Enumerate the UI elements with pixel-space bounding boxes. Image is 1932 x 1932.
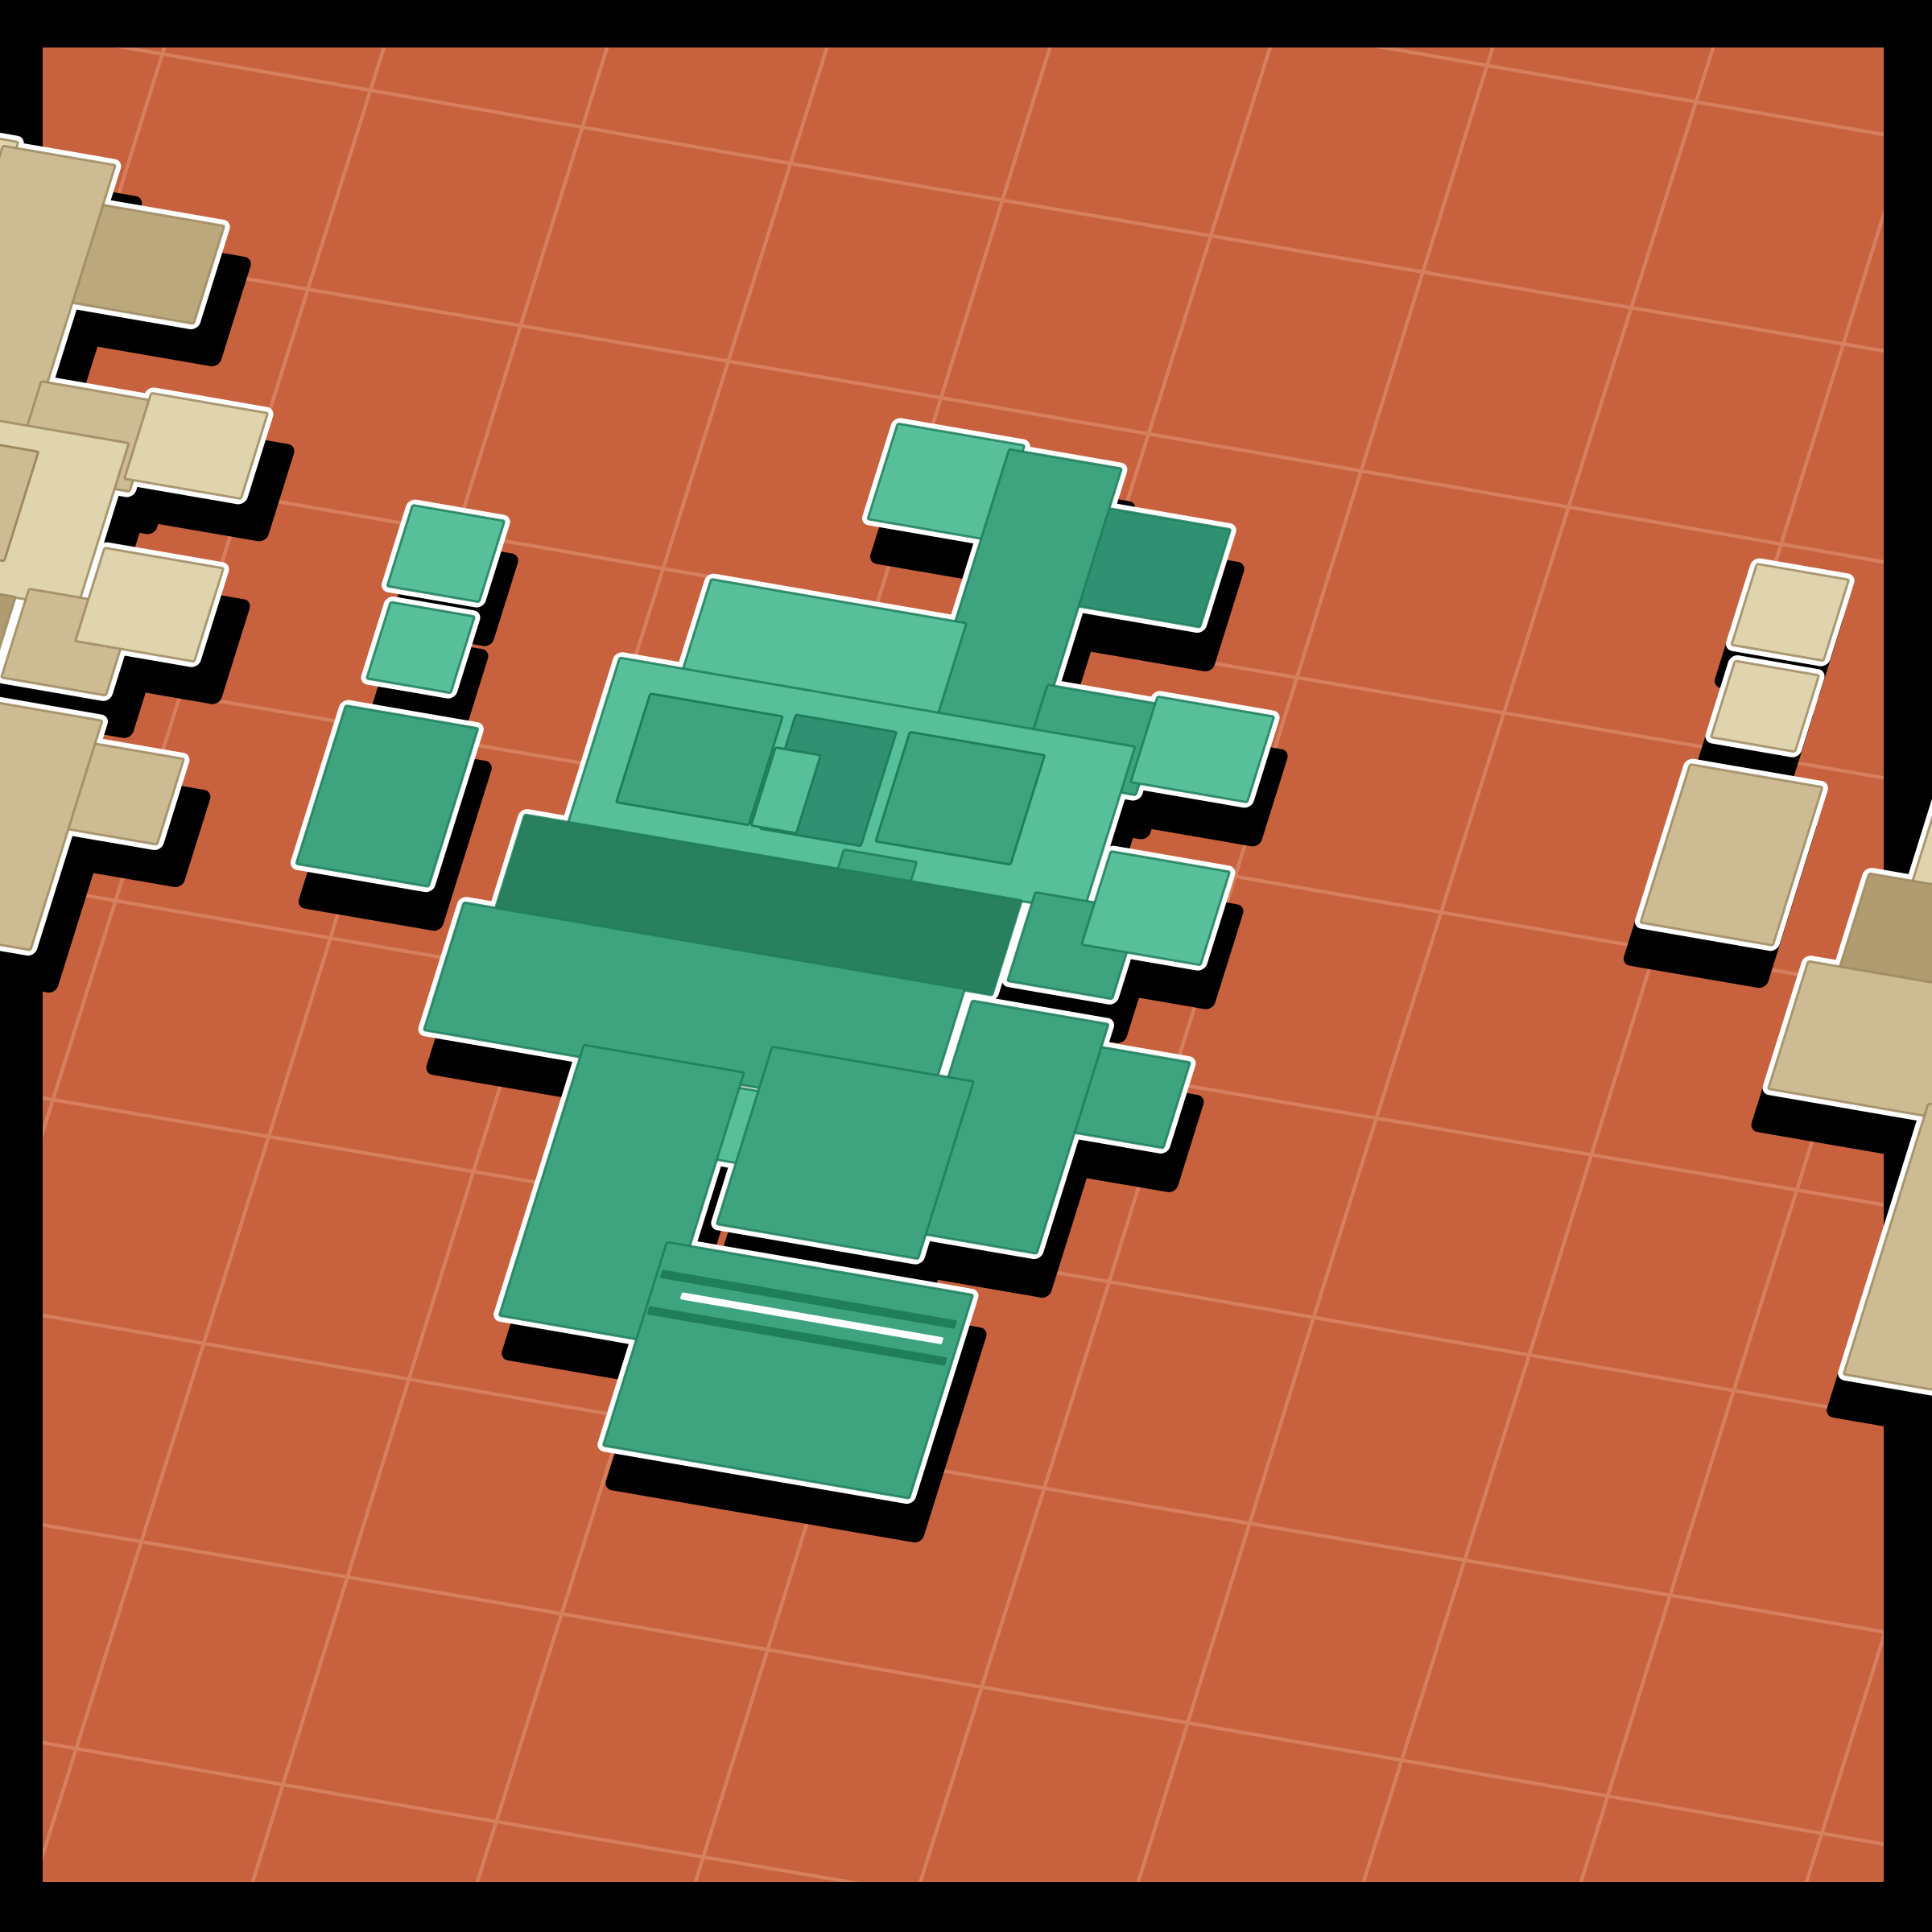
figure-piece: [125, 393, 268, 498]
illustration-stage: [0, 0, 1932, 1932]
figure-piece: [1131, 696, 1274, 802]
abstract-blocks-illustration: [0, 0, 1932, 1932]
